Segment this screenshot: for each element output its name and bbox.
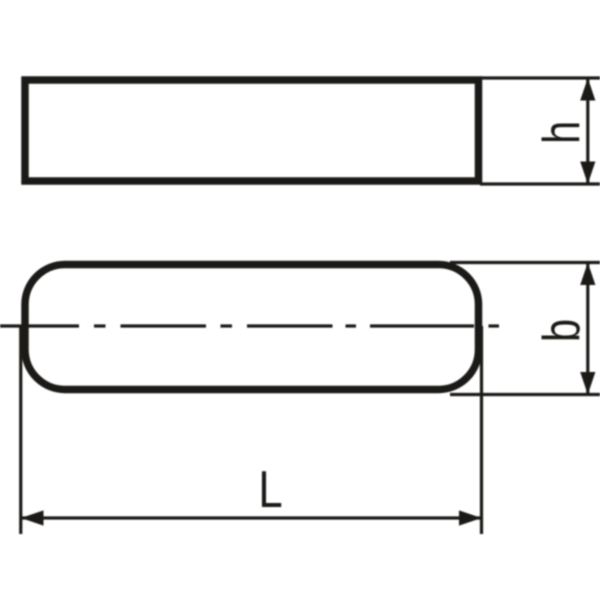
svg-text:b: b: [531, 319, 590, 342]
svg-text:L: L: [258, 462, 282, 519]
svg-text:h: h: [531, 121, 590, 144]
